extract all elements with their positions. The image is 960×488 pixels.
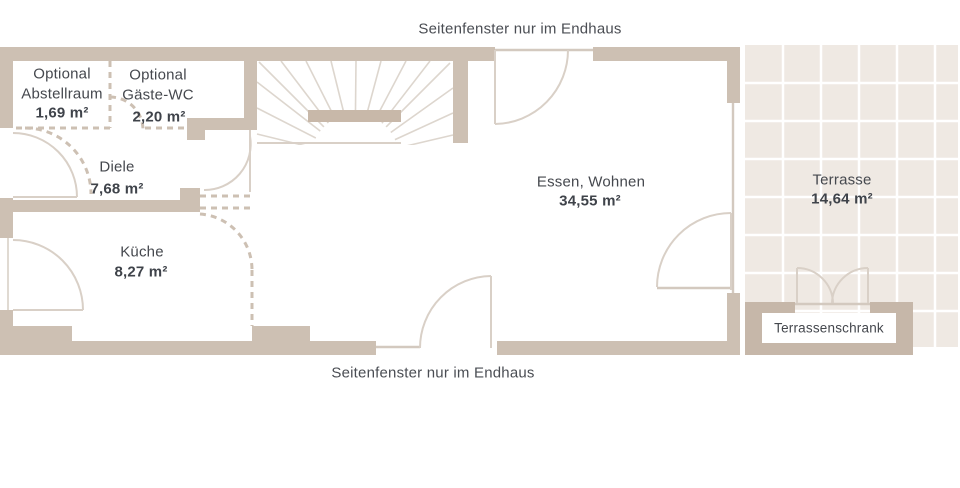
wall-wc-right <box>244 47 257 118</box>
room-gaeste-wc-area: 2,20 m² <box>132 110 185 125</box>
wall-diele-kueche <box>0 200 180 212</box>
room-kueche-area: 8,27 m² <box>114 265 167 280</box>
top-side-window-swing <box>495 50 568 124</box>
wall-wc-bottom-a <box>187 118 205 140</box>
room-gaeste-wc-name: Gäste-WC <box>122 88 194 103</box>
wall-wc-bottom-b <box>205 118 257 130</box>
wall-diele-jamb <box>180 188 200 212</box>
kitchen-window-swing <box>8 238 83 310</box>
wall-right-lower <box>727 293 740 355</box>
dashed-abstellraum-door-swing <box>25 128 91 194</box>
kitchen-parapet <box>13 326 72 341</box>
dashed-kueche-door-swing <box>200 214 252 270</box>
room-abstellraum-prefix: Optional <box>33 67 90 82</box>
floor-plan: Seitenfenster nur im Endhaus Seitenfenst… <box>0 0 960 488</box>
room-kueche-name: Küche <box>120 245 164 260</box>
room-diele-area: 7,68 m² <box>90 182 143 197</box>
wall-top-right <box>593 47 740 61</box>
stair-lower-mask <box>257 145 453 207</box>
wall-left-lower <box>0 310 13 355</box>
room-terrasse-area: 14,64 m² <box>811 192 873 207</box>
room-abstellraum-name: Abstellraum <box>21 87 102 102</box>
diele-wohnen-door <box>204 130 251 192</box>
annotation-top: Seitenfenster nur im Endhaus <box>418 22 621 37</box>
annotation-bottom: Seitenfenster nur im Endhaus <box>331 366 534 381</box>
wall-right-upper <box>727 47 740 103</box>
room-essen-wohnen-name: Essen, Wohnen <box>537 175 645 190</box>
wall-left-upper <box>0 47 13 128</box>
stair-landing-bar <box>308 110 401 122</box>
room-terrasse-name: Terrasse <box>812 173 871 188</box>
wall-stair-stub <box>453 47 468 143</box>
bottom-side-door-swing <box>420 276 491 348</box>
room-diele-name: Diele <box>99 160 134 175</box>
installation-shaft <box>252 326 310 341</box>
wall-bottom-right <box>497 341 740 355</box>
room-terrassenschrank-name: Terrassenschrank <box>774 321 884 335</box>
room-essen-wohnen-area: 34,55 m² <box>559 194 621 209</box>
room-gaeste-wc-prefix: Optional <box>129 68 186 83</box>
terrace-door-swing <box>657 213 731 290</box>
room-abstellraum-area: 1,69 m² <box>35 106 88 121</box>
wall-bottom-left <box>0 341 376 355</box>
